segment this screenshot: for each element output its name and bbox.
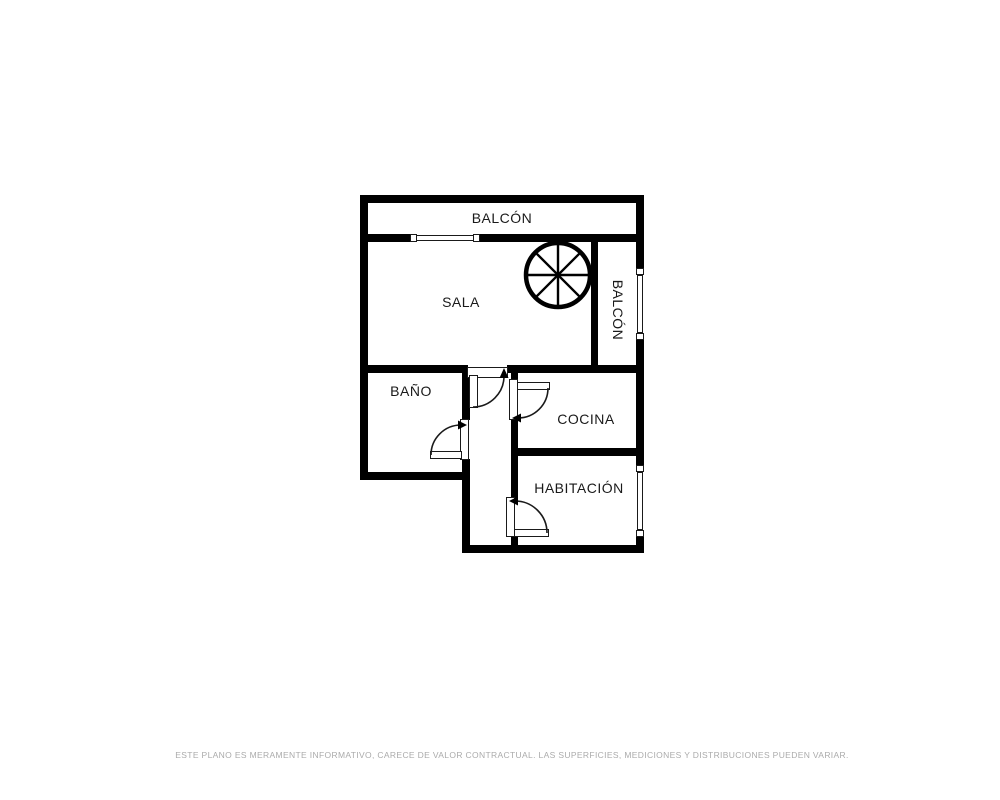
- door-habitacion-leaf: [514, 529, 549, 537]
- door-sala-leaf: [469, 375, 478, 408]
- sala-bottom-wall-left: [360, 365, 468, 373]
- room-label-habitacion: HABITACIÓN: [534, 480, 624, 496]
- sala-balcony-divider-wall: [591, 242, 598, 365]
- window-balcon-top-cap-right: [473, 234, 480, 242]
- door-bano-leaf: [430, 451, 462, 459]
- cocina-habitacion-wall: [511, 448, 644, 456]
- window-balcon-top-pane: [416, 235, 474, 241]
- spiral-staircase-icon: [526, 243, 590, 307]
- balcony-inner-wall-left: [360, 234, 410, 242]
- balcony-inner-wall-right: [480, 234, 644, 242]
- window-habitacion-cap-bottom: [636, 530, 644, 537]
- room-label-balcon-right: BALCÓN: [610, 280, 626, 341]
- window-balcon-right-pane: [637, 275, 643, 333]
- room-label-bano: BAÑO: [390, 383, 432, 399]
- corridor-right-wall-mid: [511, 420, 518, 498]
- disclaimer-text: ESTE PLANO ES MERAMENTE INFORMATIVO, CAR…: [0, 750, 1000, 760]
- outer-wall-bottom: [462, 545, 644, 553]
- room-label-balcon-top: BALCÓN: [472, 210, 533, 226]
- sala-bottom-wall-right: [507, 365, 644, 373]
- room-label-sala: SALA: [442, 294, 480, 310]
- bano-bottom-wall: [360, 472, 470, 480]
- window-balcon-right-cap-bottom: [636, 333, 644, 340]
- window-habitacion-pane: [637, 472, 643, 530]
- door-cocina-leaf: [517, 382, 550, 390]
- room-label-cocina: COCINA: [557, 411, 614, 427]
- outer-wall-top: [360, 195, 644, 203]
- window-balcon-right-cap-top: [636, 268, 644, 275]
- window-balcon-top-cap-left: [410, 234, 417, 242]
- plan-symbols-layer: [0, 0, 1000, 800]
- floor-plan-canvas: BALCÓN SALA BALCÓN BAÑO COCINA HABITACIÓ…: [0, 0, 1000, 800]
- window-habitacion-cap-top: [636, 465, 644, 472]
